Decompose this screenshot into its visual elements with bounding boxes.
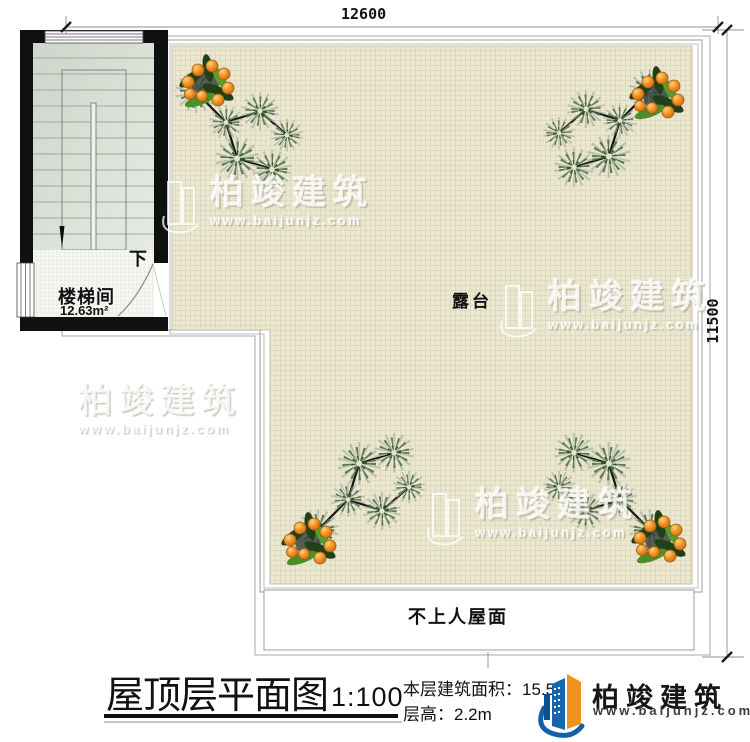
stairwell-area-label: 12.63m² xyxy=(60,303,108,318)
drawing-title: 屋顶层平面图 xyxy=(106,664,328,719)
floor-height-label: 层高： xyxy=(403,705,454,724)
floor-area-row: 本层建筑面积：15.5 xyxy=(403,677,555,702)
plan-drawing xyxy=(0,0,750,742)
brand-logo-icon xyxy=(536,668,596,738)
window-left xyxy=(17,263,34,317)
stair-handrail xyxy=(91,103,96,250)
roof-strip-label: 不上人屋面 xyxy=(408,603,508,629)
drawing-scale: 1:100 xyxy=(331,682,404,713)
floor-height-value: 2.2m xyxy=(454,705,492,724)
stair-direction-label: 下 xyxy=(129,245,147,271)
floor-area-label: 本层建筑面积： xyxy=(403,680,522,699)
window-top xyxy=(45,31,143,43)
brand-website: www.baijunjz.com xyxy=(593,703,750,718)
floor-height-row: 层高：2.2m xyxy=(403,702,555,727)
terrace-label: 露台 xyxy=(452,287,492,312)
dimension-top-label: 12600 xyxy=(341,5,386,23)
title-underline-thin xyxy=(104,721,402,723)
dimension-right-label: 11500 xyxy=(704,286,722,356)
title-underline xyxy=(104,714,398,718)
floorplan-canvas: 柏竣建筑 www.baijunjz.com 柏竣建筑 www.baijunjz.… xyxy=(0,0,750,742)
drawing-info: 本层建筑面积：15.5 层高：2.2m xyxy=(403,677,555,727)
